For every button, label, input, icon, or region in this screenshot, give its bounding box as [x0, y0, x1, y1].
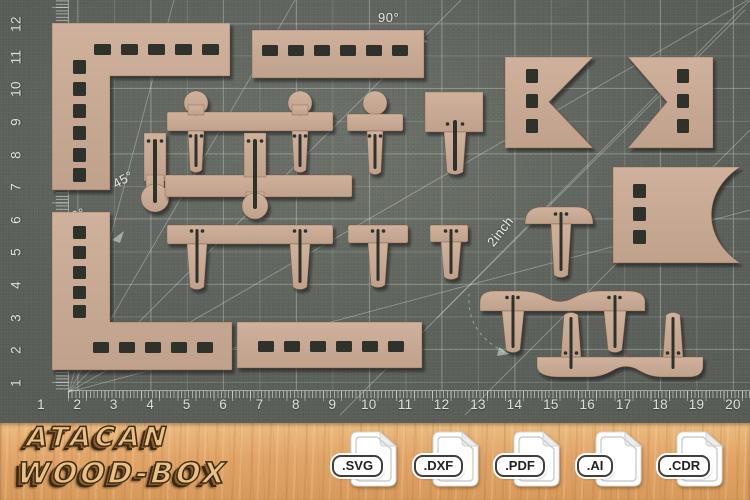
wood-piece-t-clamp-medium: [348, 225, 408, 288]
cutting-mat: 1234567891011121314151617181920 12345678…: [0, 0, 750, 423]
wood-piece-square-clamp: [425, 92, 483, 175]
format-badges: .SVG.DXF.PDF.AI.CDR: [0, 423, 750, 500]
file-format-badge: .CDR: [656, 431, 734, 495]
file-format-badge: .DXF: [412, 431, 490, 495]
format-label: .DXF: [414, 455, 464, 477]
format-label: .CDR: [658, 455, 710, 477]
wood-piece-slotted-bar-bottom: [237, 322, 422, 368]
wood-piece-t-clamp-bar: [167, 225, 333, 290]
wood-piece-arrow-plate-right: [628, 57, 713, 148]
format-label: .AI: [577, 455, 614, 477]
wood-piece-slotted-bar-top: [252, 30, 424, 78]
product-image: 1234567891011121314151617181920 12345678…: [0, 0, 750, 500]
footer-banner: ATACAN WOOD-BOX .SVG.DXF.PDF.AI.CDR: [0, 423, 750, 500]
wood-piece-knob-clamp-single: [347, 91, 403, 175]
file-format-badge: .PDF: [493, 431, 571, 495]
wood-piece-bulb-clamp-single: [141, 133, 169, 212]
wood-piece-t-clamp-small: [430, 225, 468, 280]
wood-piece-concave-plate: [613, 167, 740, 263]
file-format-badge: .AI: [575, 431, 653, 495]
file-format-badge: .SVG: [330, 431, 408, 495]
format-label: .SVG: [332, 455, 383, 477]
arrow-icon: [112, 231, 124, 243]
wood-piece-arrow-plate-left: [505, 57, 593, 148]
format-label: .PDF: [495, 455, 545, 477]
